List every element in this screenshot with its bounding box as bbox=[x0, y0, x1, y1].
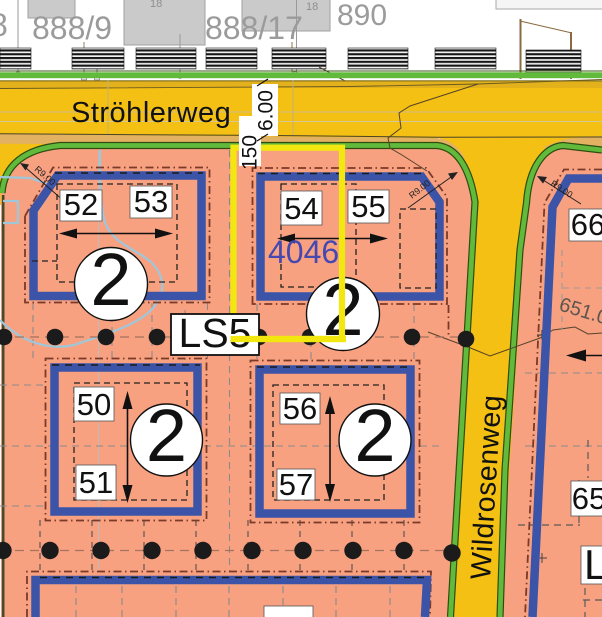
svg-text:56: 56 bbox=[283, 391, 317, 426]
svg-text:2: 2 bbox=[354, 394, 395, 477]
svg-text:66: 66 bbox=[571, 207, 602, 242]
svg-text:4046: 4046 bbox=[268, 234, 339, 270]
svg-text:L: L bbox=[584, 541, 602, 588]
svg-text:52: 52 bbox=[64, 187, 98, 222]
svg-text:18: 18 bbox=[150, 0, 162, 10]
svg-text:65: 65 bbox=[572, 481, 602, 516]
svg-text:54: 54 bbox=[284, 191, 318, 226]
svg-text:53: 53 bbox=[134, 184, 168, 219]
svg-text:LS5: LS5 bbox=[179, 310, 252, 356]
svg-text:51: 51 bbox=[79, 465, 113, 500]
svg-text:2: 2 bbox=[90, 238, 131, 321]
svg-text:888/9: 888/9 bbox=[32, 10, 112, 46]
svg-text:57: 57 bbox=[279, 467, 313, 502]
svg-text:890: 890 bbox=[337, 0, 387, 32]
svg-text:2: 2 bbox=[146, 394, 187, 477]
svg-text:Ströhlerweg: Ströhlerweg bbox=[71, 97, 231, 129]
svg-text:888/17: 888/17 bbox=[205, 10, 303, 46]
svg-text:55: 55 bbox=[351, 189, 385, 224]
svg-text:18: 18 bbox=[306, 1, 318, 13]
svg-text:6.00: 6.00 bbox=[255, 90, 278, 131]
svg-text:8: 8 bbox=[0, 7, 8, 43]
svg-text:50: 50 bbox=[77, 387, 111, 422]
